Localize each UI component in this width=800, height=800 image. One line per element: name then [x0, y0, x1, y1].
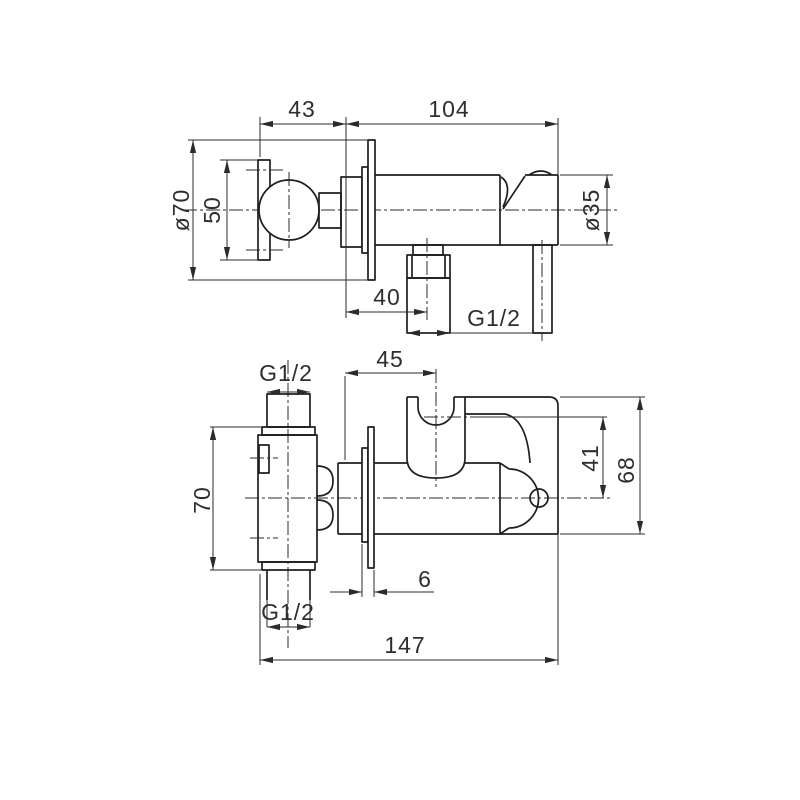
dim-front-valve-body-height: 70: [189, 486, 215, 514]
dim-top-outlet-thread: G1/2: [467, 305, 521, 331]
top-view: 43 104 ø70 50 ø35 40 G1/2: [168, 96, 620, 341]
dim-front-total-length: 147: [384, 632, 425, 658]
dim-front-lever-top-height: 68: [613, 456, 639, 484]
limiter-notch: [259, 445, 269, 473]
holder-hook: [407, 369, 465, 487]
valve-body: [250, 394, 333, 627]
shower-pipe: [533, 240, 552, 341]
front-wall-flange: [362, 427, 374, 568]
mixer-body: [375, 171, 558, 245]
dim-top-flange-diameter: ø70: [168, 189, 194, 232]
drawing-page: 43 104 ø70 50 ø35 40 G1/2: [0, 0, 800, 800]
dim-front-outlet-thread: G1/2: [261, 599, 315, 625]
dim-front-holder-center-height: 41: [577, 444, 603, 472]
dim-top-handle-length: 50: [199, 196, 225, 224]
dim-top-body-diameter: ø35: [578, 189, 604, 232]
dim-top-handle-to-wall: 43: [288, 96, 316, 122]
technical-drawing: 43 104 ø70 50 ø35 40 G1/2: [0, 0, 800, 800]
dim-top-body-length: 104: [428, 96, 469, 122]
lower-nipple: [317, 500, 333, 530]
outlet-port: [407, 238, 450, 333]
dim-top-outlet-offset: 40: [373, 284, 401, 310]
lever-edge: [503, 176, 525, 209]
top-view-dimensions: 43 104 ø70 50 ø35 40 G1/2: [168, 96, 613, 333]
upper-nipple: [317, 466, 333, 496]
dim-front-inlet-thread: G1/2: [259, 360, 313, 386]
front-view: G1/2 45 41 68 70 G1/2 6 147: [189, 346, 645, 665]
lever-neck: [505, 414, 530, 463]
dim-front-holder-offset: 45: [376, 346, 404, 372]
lever-handle: [465, 397, 558, 534]
dim-front-flange-thickness: 6: [418, 566, 432, 592]
